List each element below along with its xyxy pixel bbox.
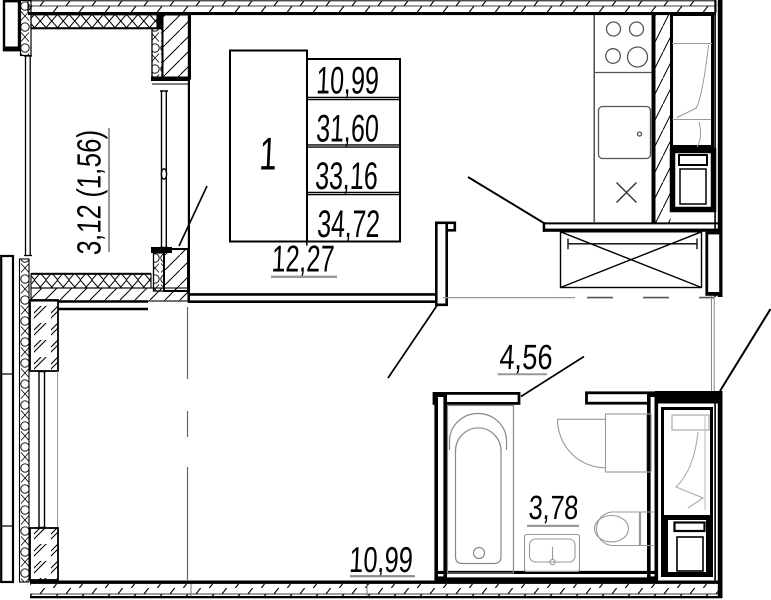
svg-text:10,99: 10,99 [348, 540, 413, 580]
svg-text:4,56: 4,56 [499, 338, 554, 377]
svg-text:3,78: 3,78 [528, 490, 580, 527]
svg-text:33,16: 33,16 [314, 155, 379, 198]
svg-text:3,12 (1,56): 3,12 (1,56) [71, 129, 108, 256]
svg-text:1: 1 [258, 129, 278, 180]
svg-text:31,60: 31,60 [315, 107, 380, 150]
svg-text:10,99: 10,99 [315, 59, 380, 102]
svg-text:12,27: 12,27 [271, 237, 335, 279]
